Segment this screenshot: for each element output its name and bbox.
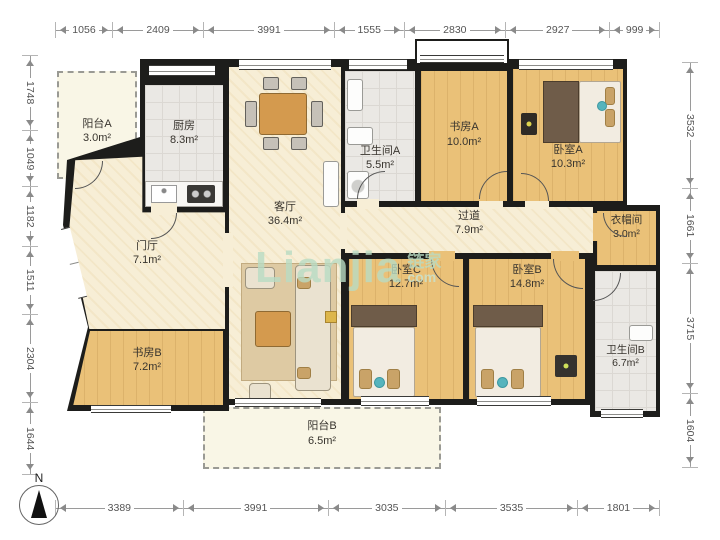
- room-name: 书房A: [421, 120, 507, 134]
- room-area: 36.4m²: [229, 214, 341, 228]
- dining-bench: [245, 101, 257, 127]
- room-name: 阳台A: [59, 117, 135, 131]
- tv-cabinet: [555, 355, 577, 377]
- room-name: 书房B: [71, 346, 223, 360]
- room-hallway: 过道7.9m²: [345, 207, 593, 253]
- room-area: 5.5m²: [345, 158, 415, 172]
- bed-pillow: [511, 369, 524, 389]
- dim-segment: 1661: [682, 188, 698, 263]
- room-kitchen: 厨房8.3m²: [145, 85, 223, 207]
- opening-study-a: [479, 201, 503, 209]
- bathroom-sink: [347, 127, 373, 145]
- room-area: 7.9m²: [345, 223, 593, 237]
- bay-window: [415, 39, 509, 65]
- dim-segment: 1056: [55, 22, 112, 38]
- dim-segment: 3535: [445, 500, 577, 516]
- room-area: 6.7m²: [595, 357, 656, 371]
- room-name: 过道: [345, 209, 593, 223]
- opening-bath-a: [357, 199, 379, 209]
- window-bedroom-b: [477, 396, 551, 406]
- coffee-table: [255, 311, 291, 347]
- dim-segment: 3991: [183, 500, 328, 516]
- dim-segment: 3715: [682, 263, 698, 394]
- room-name: 门厅: [69, 239, 225, 253]
- opening-foyer-living: [223, 233, 233, 287]
- toilet: [347, 79, 363, 111]
- dim-segment: 2409: [112, 22, 203, 38]
- dining-table: [259, 93, 307, 135]
- dim-segment: 3035: [328, 500, 446, 516]
- bed-pillow: [605, 109, 615, 127]
- room-name: 卫生间A: [345, 144, 415, 158]
- dim-segment: 1604: [682, 393, 698, 468]
- dining-chair: [291, 137, 307, 150]
- bed-pillow: [387, 369, 400, 389]
- window-bath-a: [349, 59, 407, 70]
- compass-needle-icon: [31, 490, 47, 518]
- dim-segment: 3532: [682, 62, 698, 188]
- round-pillow: [597, 101, 607, 111]
- dim-segment: 2304: [22, 314, 38, 403]
- dimension-col-left: 1748 1049 1182 1511 2304 1644: [22, 55, 38, 475]
- room-area: 7.2m²: [71, 360, 223, 374]
- kitchen-sink: [151, 185, 177, 203]
- room-study-b: 书房B7.2m²: [71, 331, 223, 405]
- nightstand: [521, 113, 537, 135]
- dim-segment: 1801: [577, 500, 660, 516]
- wardrobe: [473, 305, 543, 327]
- room-name: 卫生间B: [595, 344, 656, 358]
- dim-segment: 1748: [22, 55, 38, 130]
- opening-living-hallway: [340, 213, 347, 249]
- compass: N: [16, 472, 62, 525]
- room-area: 8.3m²: [145, 133, 223, 147]
- dimension-row-bottom: 3389 3991 3035 3535 1801: [55, 500, 660, 516]
- dim-segment: 3389: [55, 500, 183, 516]
- sofa-pillow: [297, 367, 311, 379]
- bed-pillow: [605, 87, 615, 105]
- dimension-row-top: 1056 2409 3991 1555 2830 2927 999: [55, 22, 660, 38]
- window-bay: [420, 55, 504, 63]
- room-area: 6.5m²: [205, 434, 439, 448]
- room-name: 阳台B: [205, 419, 439, 433]
- room-name: 客厅: [229, 200, 341, 214]
- dining-bench: [311, 101, 323, 127]
- dining-chair: [263, 137, 279, 150]
- window-balcony-door: [235, 398, 321, 407]
- dining-chair: [291, 77, 307, 90]
- floor-plan-canvas: 1056 2409 3991 1555 2830 2927 999 3389 3…: [0, 0, 720, 540]
- dim-segment: 999: [609, 22, 660, 38]
- room-balcony-b: 阳台B6.5m²: [203, 407, 441, 469]
- wardrobe: [543, 81, 579, 143]
- room-name: 厨房: [145, 119, 223, 133]
- compass-north-label: N: [16, 472, 62, 484]
- round-pillow: [497, 377, 508, 388]
- window-bedroom-a: [519, 59, 613, 70]
- opening-cloakroom: [593, 213, 599, 241]
- side-table: [325, 311, 337, 323]
- floor-plan: 阳台A3.0m² 阳台B6.5m² 厨房8.3m² 客厅36.4m²: [55, 55, 660, 475]
- room-area: 10.0m²: [421, 135, 507, 149]
- dining-chair: [263, 77, 279, 90]
- wardrobe: [351, 305, 417, 327]
- opening-bedroom-a: [525, 201, 549, 209]
- dimension-col-right: 3532 1661 3715 1604: [682, 62, 698, 468]
- dim-segment: 2927: [505, 22, 609, 38]
- toilet: [629, 325, 653, 341]
- room-living: 客厅36.4m²: [229, 67, 341, 399]
- window-kitchen: [149, 65, 215, 76]
- dim-segment: 1555: [334, 22, 404, 38]
- kitchen-stove: [187, 185, 215, 203]
- dim-segment: 1644: [22, 402, 38, 475]
- dim-segment: 2830: [404, 22, 506, 38]
- dim-segment: 1511: [22, 246, 38, 314]
- window-bedroom-c: [361, 396, 429, 406]
- armchair: [245, 267, 275, 289]
- window-bath-b: [601, 409, 643, 418]
- room-name: 卧室A: [513, 143, 623, 157]
- compass-circle: [19, 485, 59, 525]
- sofa-pillow: [297, 277, 311, 289]
- window-living: [239, 59, 331, 70]
- room-area: 7.1m²: [69, 253, 225, 267]
- round-pillow: [374, 377, 385, 388]
- bed-pillow: [359, 369, 372, 389]
- window-study-b: [91, 405, 171, 413]
- dim-segment: 3991: [203, 22, 334, 38]
- bed-pillow: [481, 369, 494, 389]
- room-area: 10.3m²: [513, 157, 623, 171]
- dim-segment: 1182: [22, 186, 38, 245]
- dim-segment: 1049: [22, 130, 38, 187]
